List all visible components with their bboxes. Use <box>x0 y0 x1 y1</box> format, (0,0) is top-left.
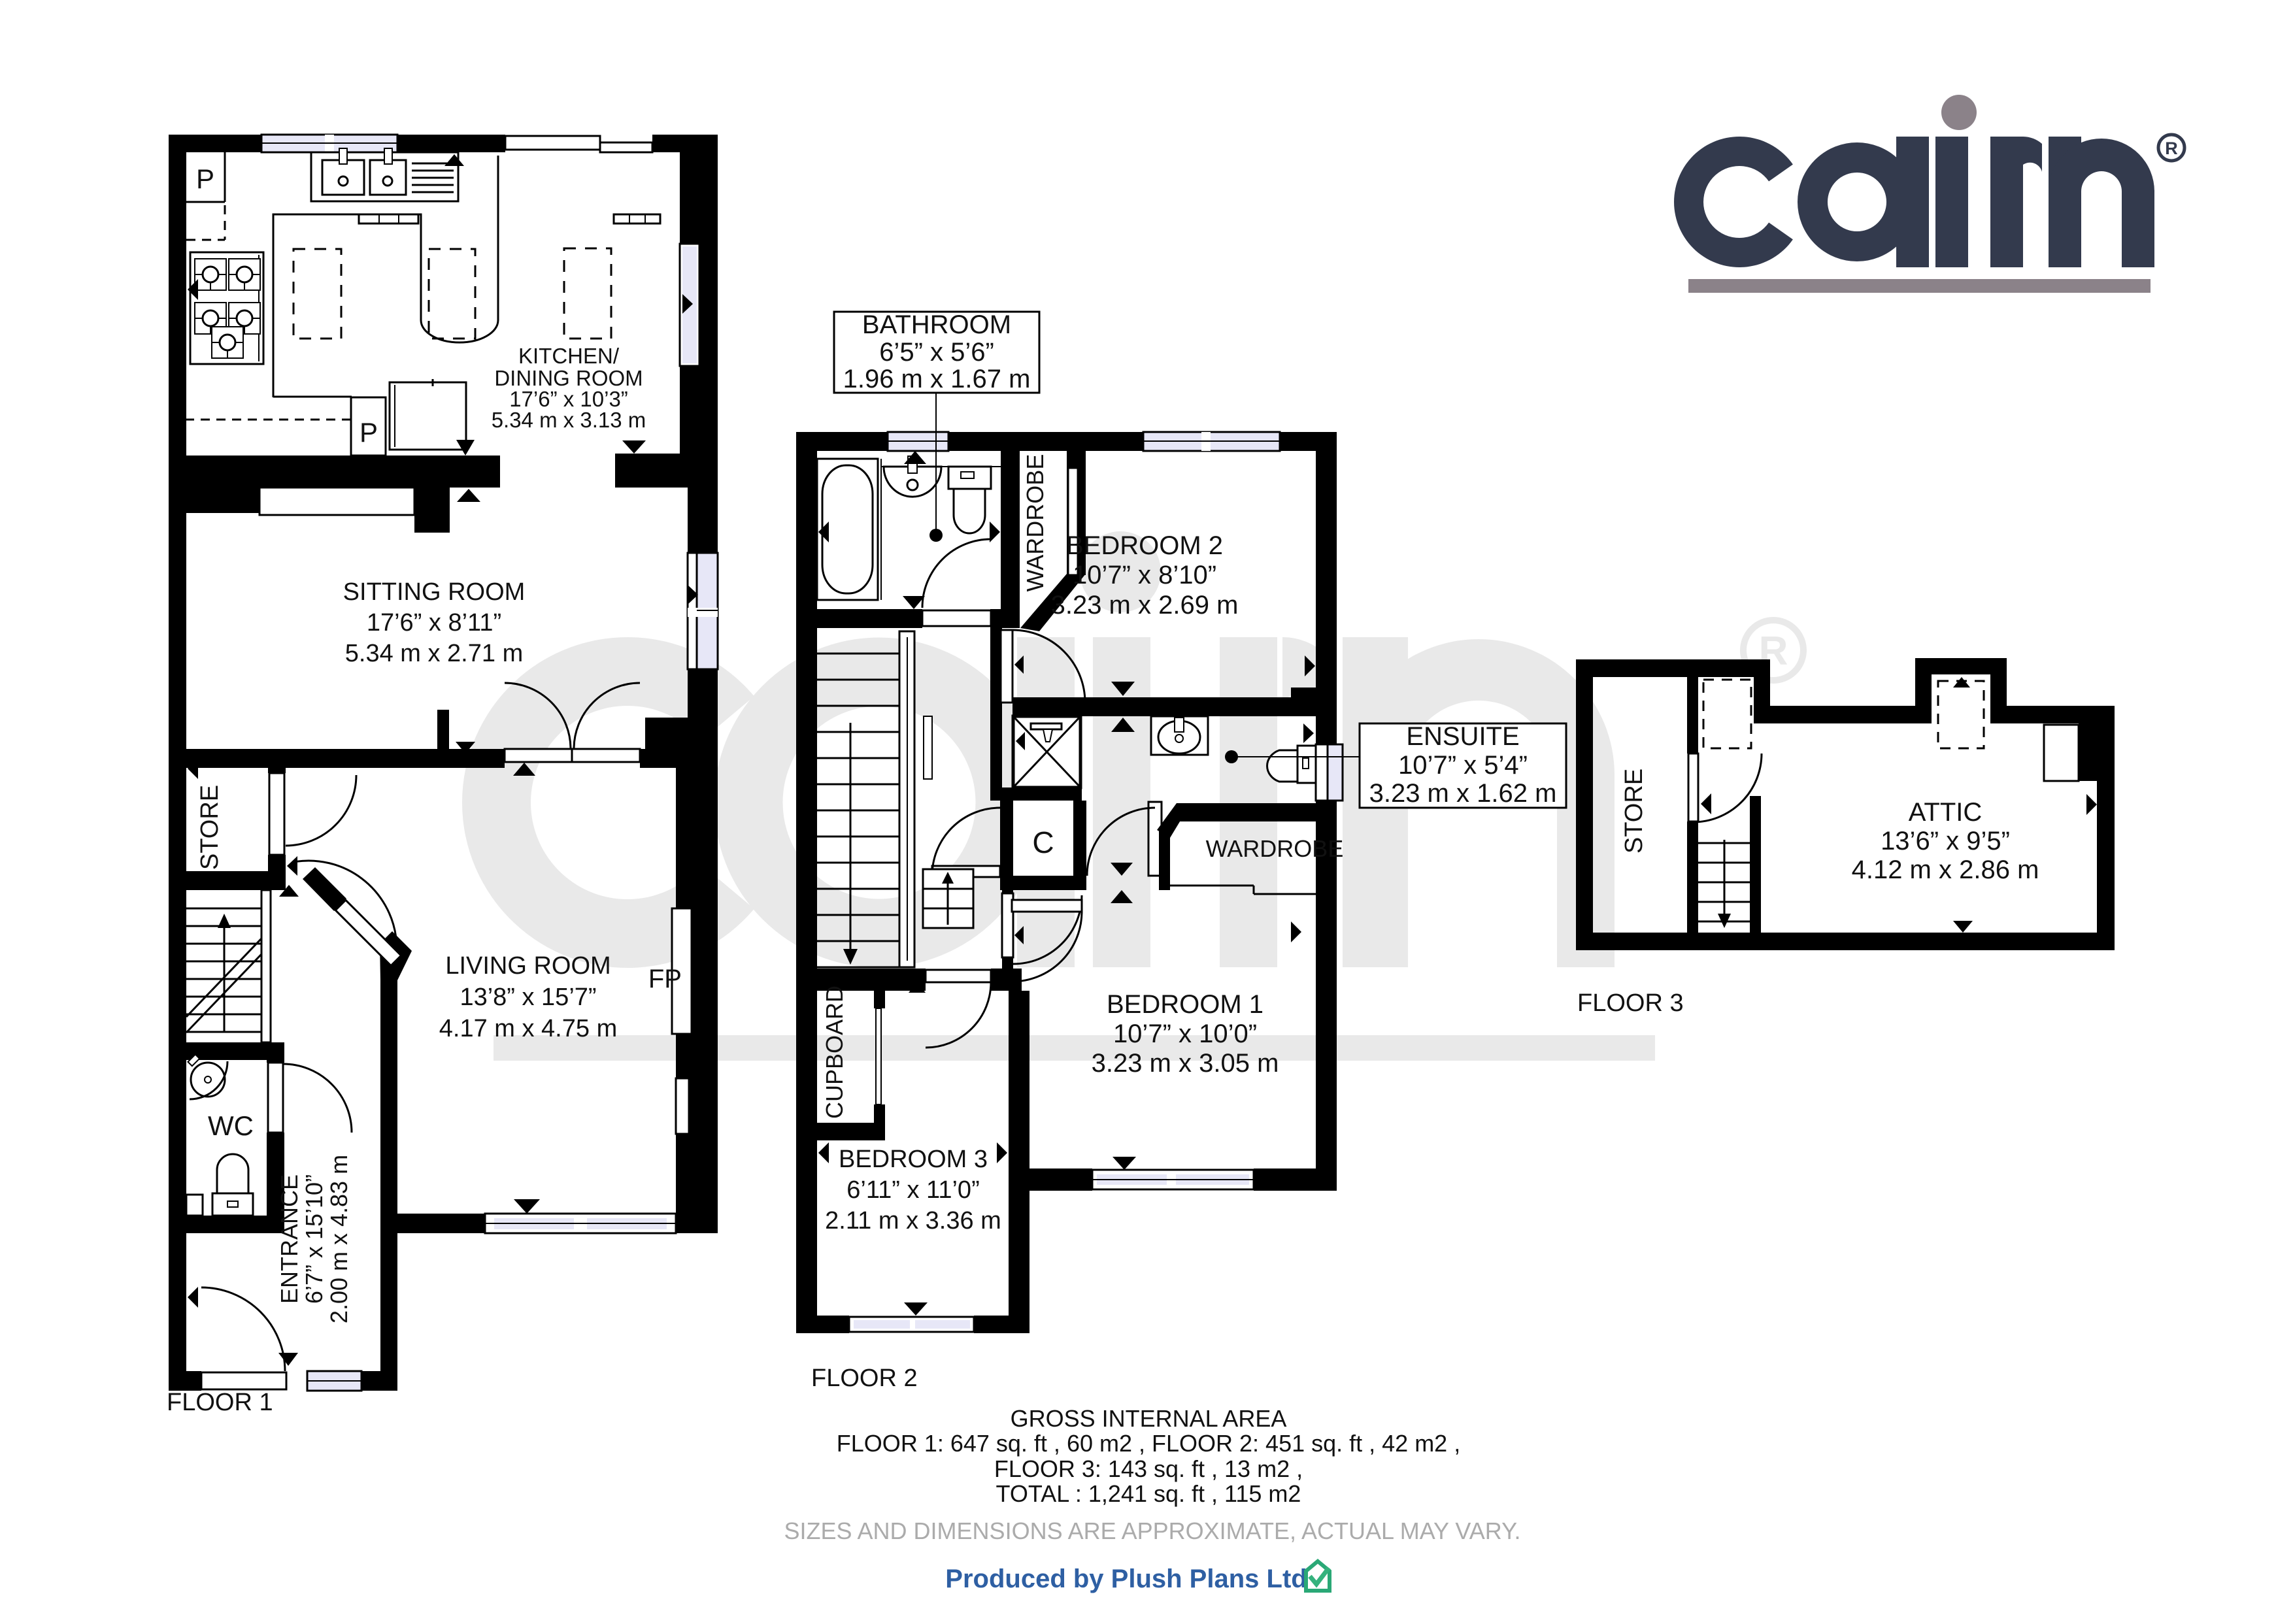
svg-text:FLOOR 2: FLOOR 2 <box>811 1365 918 1392</box>
svg-text:CUPBOARD: CUPBOARD <box>821 986 848 1119</box>
svg-text:6’7” x 15’10”: 6’7” x 15’10” <box>301 1174 327 1304</box>
svg-text:BEDROOM 2: BEDROOM 2 <box>1066 531 1223 560</box>
svg-text:LIVING ROOM: LIVING ROOM <box>445 952 611 980</box>
svg-text:R: R <box>2165 139 2178 158</box>
svg-text:WC: WC <box>208 1110 254 1141</box>
svg-text:P: P <box>196 163 214 194</box>
svg-text:10’7” x 5’4”: 10’7” x 5’4” <box>1398 751 1528 780</box>
svg-text:4.12 m x 2.86 m: 4.12 m x 2.86 m <box>1852 855 2039 884</box>
svg-text:C: C <box>1032 825 1054 859</box>
svg-text:STORE: STORE <box>196 785 224 870</box>
svg-text:FP: FP <box>648 965 682 993</box>
svg-text:BEDROOM 1: BEDROOM 1 <box>1107 990 1264 1019</box>
svg-text:4.17 m x 4.75 m: 4.17 m x 4.75 m <box>439 1015 617 1042</box>
svg-text:SIZES AND DIMENSIONS ARE APPRO: SIZES AND DIMENSIONS ARE APPROXIMATE, AC… <box>784 1517 1521 1544</box>
svg-text:2.00 m x 4.83 m: 2.00 m x 4.83 m <box>326 1155 352 1323</box>
svg-text:6’5” x 5’6”: 6’5” x 5’6” <box>879 338 994 367</box>
svg-text:GROSS INTERNAL AREA: GROSS INTERNAL AREA <box>1011 1405 1287 1432</box>
svg-text:ATTIC: ATTIC <box>1909 798 1983 827</box>
svg-text:5.34 m x 3.13 m: 5.34 m x 3.13 m <box>492 408 646 432</box>
svg-text:3.23 m x 1.62 m: 3.23 m x 1.62 m <box>1369 779 1557 808</box>
svg-text:TOTAL : 1,241 sq. ft , 115 m2: TOTAL : 1,241 sq. ft , 115 m2 <box>996 1480 1301 1507</box>
svg-text:FLOOR 1: FLOOR 1 <box>167 1389 273 1416</box>
svg-text:Produced by Plush Plans Ltd: Produced by Plush Plans Ltd <box>945 1565 1307 1593</box>
svg-text:13’8” x 15’7”: 13’8” x 15’7” <box>460 984 596 1011</box>
svg-text:BATHROOM: BATHROOM <box>862 310 1011 339</box>
svg-text:ENTRANCE: ENTRANCE <box>276 1174 303 1304</box>
svg-text:3.23 m x 3.05 m: 3.23 m x 3.05 m <box>1092 1049 1279 1078</box>
svg-text:FLOOR 3: 143 sq. ft , 13 m2 ,: FLOOR 3: 143 sq. ft , 13 m2 , <box>994 1455 1303 1482</box>
svg-text:3.23 m x 2.69 m: 3.23 m x 2.69 m <box>1051 591 1239 620</box>
svg-text:STORE: STORE <box>1620 769 1648 853</box>
svg-text:BEDROOM 3: BEDROOM 3 <box>839 1146 988 1173</box>
svg-text:5.34 m x 2.71 m: 5.34 m x 2.71 m <box>345 640 523 667</box>
svg-text:WARDROBE: WARDROBE <box>1206 835 1344 862</box>
svg-text:2.11 m x 3.36 m: 2.11 m x 3.36 m <box>825 1207 1001 1235</box>
svg-text:P: P <box>360 417 378 448</box>
svg-text:FLOOR 3: FLOOR 3 <box>1577 989 1684 1017</box>
svg-text:SITTING ROOM: SITTING ROOM <box>343 578 526 606</box>
svg-text:ENSUITE: ENSUITE <box>1406 722 1519 751</box>
svg-text:17’6” x 8’11”: 17’6” x 8’11” <box>367 609 501 637</box>
svg-text:10’7” x 10’0”: 10’7” x 10’0” <box>1113 1019 1257 1048</box>
svg-text:10’7” x 8’10”: 10’7” x 8’10” <box>1073 561 1216 589</box>
svg-text:WARDROBE: WARDROBE <box>1022 454 1048 592</box>
svg-text:1.96 m x 1.67 m: 1.96 m x 1.67 m <box>843 365 1031 393</box>
svg-text:6’11” x 11’0”: 6’11” x 11’0” <box>846 1176 979 1204</box>
svg-text:13’6” x 9’5”: 13’6” x 9’5” <box>1881 827 2010 855</box>
svg-text:FLOOR 1: 647 sq. ft , 60 m2 ,: FLOOR 1: 647 sq. ft , 60 m2 , FLOOR 2: 4… <box>837 1430 1460 1457</box>
svg-text:KITCHEN/: KITCHEN/ <box>518 344 620 368</box>
